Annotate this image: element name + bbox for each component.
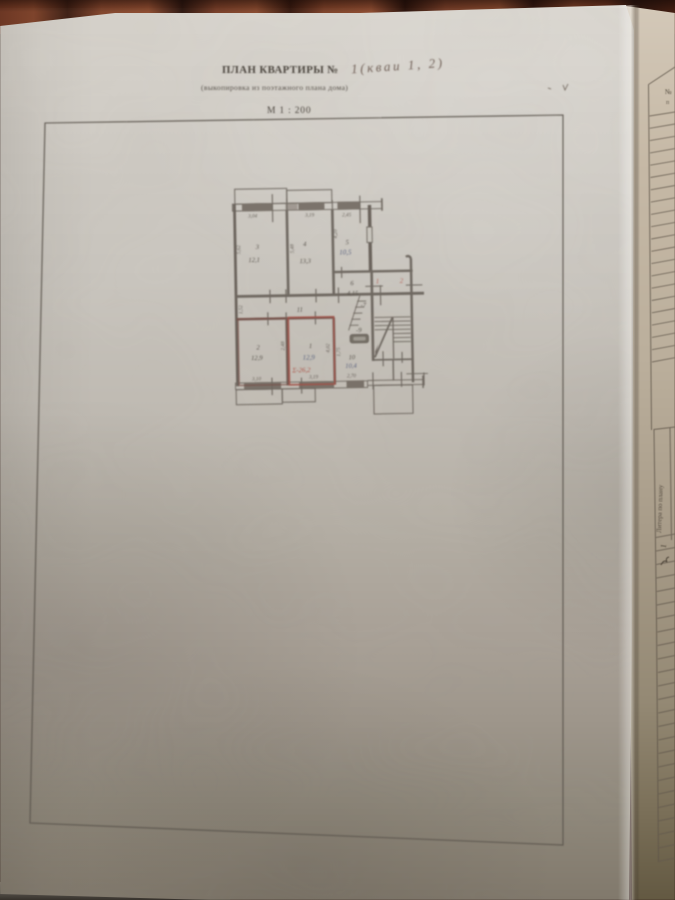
svg-text:6: 6 [350, 280, 354, 287]
svg-text:12,1: 12,1 [248, 257, 260, 264]
svg-text:10,5: 10,5 [339, 248, 352, 256]
svg-text:1(кваи 1, 2): 1(кваи 1, 2) [351, 55, 446, 77]
svg-text:5,62: 5,62 [236, 245, 242, 255]
svg-text:2,45: 2,45 [342, 211, 352, 218]
svg-text:М 1 : 200: М 1 : 200 [267, 106, 311, 116]
svg-text:2,70: 2,70 [347, 373, 357, 379]
svg-text:-9: -9 [356, 327, 362, 334]
svg-text:12,9: 12,9 [251, 355, 263, 362]
svg-text:(выкопировка из поэтажного пла: (выкопировка из поэтажного плана дома) [201, 83, 348, 92]
svg-text:4,15: 4,15 [347, 290, 359, 297]
svg-text:13,3: 13,3 [299, 258, 311, 265]
svg-text:12,9: 12,9 [303, 353, 316, 361]
svg-text:3,19: 3,19 [305, 212, 315, 218]
svg-text:5,48: 5,48 [289, 244, 296, 254]
svg-text:3,19: 3,19 [309, 374, 319, 380]
svg-text:Σ-26,2: Σ-26,2 [291, 367, 311, 374]
svg-text:-7: -7 [361, 302, 367, 309]
svg-text:1: 1 [309, 343, 312, 350]
svg-text:3,04: 3,04 [248, 212, 258, 219]
svg-text:1: 1 [376, 277, 380, 285]
svg-text:1,52: 1,52 [238, 305, 244, 315]
svg-text:2,48: 2,48 [279, 341, 286, 351]
svg-text:4: 4 [303, 241, 307, 248]
svg-text:4,20: 4,20 [332, 229, 339, 239]
svg-text:ПЛАН КВАРТИРЫ №: ПЛАН КВАРТИРЫ № [222, 64, 339, 76]
svg-text:3,10: 3,10 [252, 376, 262, 382]
svg-text:4,02: 4,02 [324, 343, 331, 353]
svg-text:3: 3 [255, 244, 260, 251]
svg-text:10,4: 10,4 [345, 363, 357, 370]
svg-text:2: 2 [256, 344, 260, 351]
svg-text:11: 11 [297, 307, 303, 314]
svg-text:1,75: 1,75 [336, 347, 342, 357]
svg-text:10: 10 [349, 354, 356, 361]
svg-text:5: 5 [346, 239, 350, 246]
svg-text:2: 2 [400, 277, 404, 285]
